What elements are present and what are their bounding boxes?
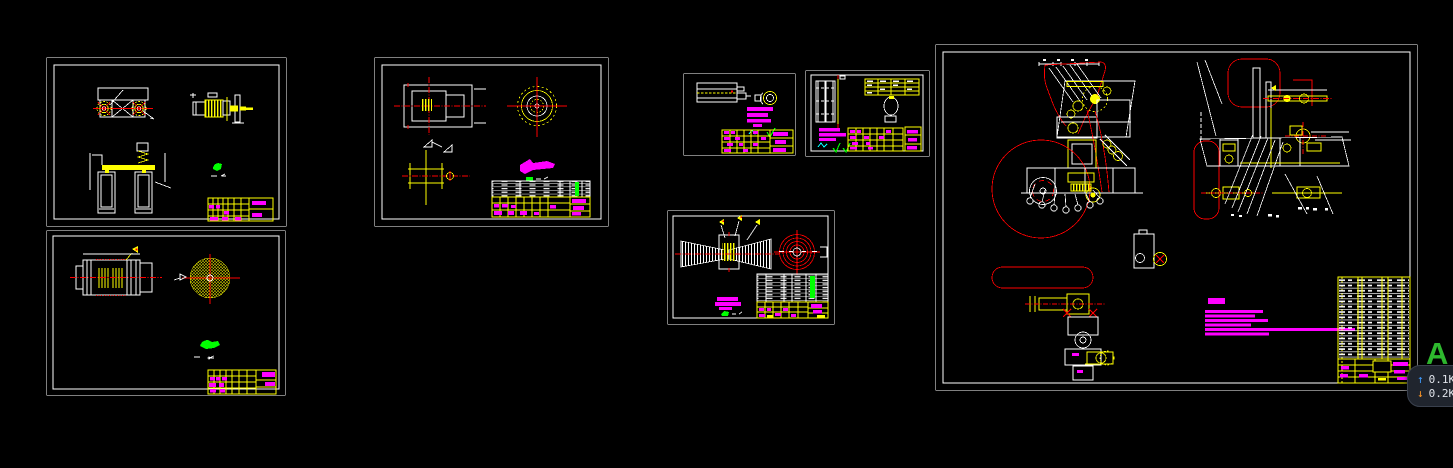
sheet-4-graphics [683, 73, 796, 156]
surface-finish-annotation [211, 163, 226, 176]
title-block [492, 197, 590, 217]
sheet-1-border [47, 58, 287, 227]
network-speed-badge[interactable]: ↑ 0.1K ↓ 0.2K [1407, 365, 1453, 407]
parts-list [1338, 277, 1410, 383]
gearbox-view [394, 77, 486, 135]
stippled-wheel-view [174, 254, 240, 304]
title-block [208, 198, 273, 221]
notes-annotation [715, 297, 742, 316]
surface-finish-annotation [194, 340, 220, 359]
parts-list [492, 181, 590, 197]
plate-part-view [816, 75, 845, 128]
title-block [722, 130, 793, 153]
drawing-sheet-6[interactable] [667, 210, 835, 325]
sheet-6-border [668, 211, 835, 325]
desktop-screenshot: { "palette": { "canvas_bg": "#000000", "… [0, 0, 1453, 468]
sheet-2-border [47, 231, 286, 396]
bushing-part-view [884, 96, 898, 122]
drawing-sheet-5[interactable] [805, 70, 930, 157]
sheet-3-graphics [374, 57, 609, 227]
sheet-7-graphics [935, 44, 1418, 391]
frame-assembly-view [90, 143, 171, 213]
title-block [208, 370, 276, 394]
download-arrow-icon: ↓ [1417, 387, 1424, 400]
shaft-part-view [697, 83, 751, 102]
cylindrical-assembly-view [70, 246, 162, 296]
drawing-sheet-1[interactable] [46, 57, 287, 227]
drawing-sheet-3[interactable] [374, 57, 609, 227]
sheet-5-graphics [805, 70, 930, 157]
parts-list [757, 274, 828, 302]
roller-shaft-view [93, 88, 154, 119]
download-speed-value: 0.2K [1429, 387, 1453, 400]
drawing-sheet-2[interactable] [46, 230, 286, 396]
drawing-sheet-4[interactable] [683, 73, 796, 156]
title-block [757, 302, 828, 318]
title-block [848, 127, 921, 151]
weld-annotation [520, 159, 555, 181]
machine-side-view [992, 59, 1143, 238]
drawing-sheet-7[interactable] [935, 44, 1418, 391]
sheet-1-graphics [46, 57, 287, 227]
worm-motor-view [190, 93, 253, 123]
download-speed-row: ↓ 0.2K [1417, 387, 1453, 400]
conveyor-pump-views [992, 267, 1114, 380]
sheet-6-graphics [667, 210, 835, 325]
upload-speed-row: ↑ 0.1K [1417, 373, 1453, 386]
sheet-2-graphics [46, 230, 286, 396]
machine-top-view [1194, 59, 1351, 219]
sprocket-view [507, 77, 567, 137]
notes-annotation [818, 128, 850, 152]
shaft-section-view [402, 140, 470, 205]
upload-arrow-icon: ↑ [1417, 373, 1424, 386]
bracket-detail-view [1134, 230, 1167, 268]
auger-view [675, 215, 779, 272]
wheel-rings-view [774, 230, 827, 275]
ring-part-view [755, 92, 777, 105]
data-table [865, 79, 919, 95]
technical-requirements-text [1205, 298, 1355, 336]
upload-speed-value: 0.1K [1429, 373, 1453, 386]
